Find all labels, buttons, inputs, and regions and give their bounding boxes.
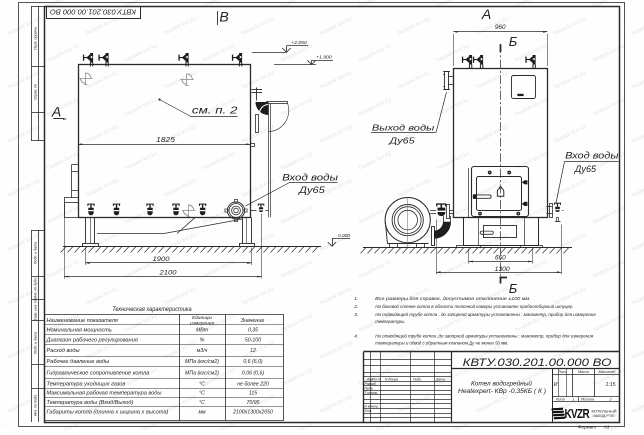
svg-text:70/95: 70/95	[247, 400, 260, 406]
svg-text:0.000: 0.000	[338, 233, 350, 238]
svg-text:Лит.: Лит.	[557, 370, 566, 374]
svg-text:мм: мм	[198, 409, 206, 415]
svg-text:Выход воды: Выход воды	[372, 122, 435, 132]
svg-text:Лист: Лист	[371, 377, 381, 381]
svg-text:660: 660	[495, 255, 506, 262]
svg-text:Справ. №: Справ. №	[33, 84, 37, 100]
svg-text:А3: А3	[603, 424, 610, 429]
svg-text:Формат: Формат	[578, 424, 596, 429]
svg-text:°С: °С	[199, 391, 205, 397]
svg-text:Перв. примен.: Перв. примен.	[33, 26, 37, 50]
svg-text:1:15: 1:15	[605, 382, 615, 388]
svg-text:А: А	[51, 103, 61, 119]
svg-text:2100: 2100	[158, 270, 177, 277]
svg-text:Лист: Лист	[555, 398, 565, 402]
svg-text:На боковой стенке котла в обла: На боковой стенке котла в области топочн…	[375, 303, 573, 310]
svg-text:м3/ч: м3/ч	[197, 348, 208, 354]
svg-text:1300: 1300	[495, 266, 511, 273]
svg-text:Пров.: Пров.	[365, 386, 374, 390]
svg-text:На отводящей трубе котла ,до з: На отводящей трубе котла ,до запорной ар…	[375, 332, 593, 339]
svg-text:Масштаб: Масштаб	[599, 370, 617, 374]
svg-text:Дата: Дата	[435, 377, 445, 381]
svg-text:Габариты котла (длинна х ширин: Габариты котла (длинна х ширина х высота…	[47, 409, 169, 415]
svg-text:Наименование показателя: Наименование показателя	[47, 318, 118, 324]
svg-text:Котел водогрейный: Котел водогрейный	[471, 381, 533, 388]
svg-text:%: %	[200, 337, 205, 343]
svg-text:Листов: Листов	[580, 398, 594, 402]
svg-text:Ду65: Ду65	[298, 185, 326, 195]
svg-text:3.: 3.	[354, 312, 358, 318]
svg-text:Heatexpert- КВр -0,35КБ ( К ): Heatexpert- КВр -0,35КБ ( К )	[458, 388, 546, 395]
svg-text:Разраб.: Разраб.	[365, 382, 377, 386]
svg-text:+2.050: +2.050	[291, 40, 307, 45]
svg-text:КВТУ.030.201.00.000 ВО: КВТУ.030.201.00.000 ВО	[463, 357, 612, 369]
svg-text:50-100: 50-100	[245, 337, 261, 343]
svg-text:+1.900: +1.900	[316, 55, 332, 60]
svg-text:Утв.: Утв.	[365, 409, 373, 413]
svg-text:Взам. инв. №: Взам. инв. №	[33, 299, 37, 321]
svg-text:Гидравлическое сопротивление к: Гидравлическое сопротивление котла	[47, 370, 150, 376]
svg-text:Техническая характеристика: Техническая характеристика	[112, 307, 192, 313]
svg-text:см. п. 2: см. п. 2	[192, 106, 238, 117]
svg-text:Инв. № подл.: Инв. № подл.	[33, 394, 37, 416]
svg-text:1900: 1900	[153, 256, 170, 263]
svg-text:Масса: Масса	[578, 370, 589, 374]
svg-text:Единицы: Единицы	[192, 315, 213, 321]
svg-text:2.: 2.	[353, 304, 358, 310]
svg-text:КОТЕЛЬНЫЙ: КОТЕЛЬНЫЙ	[592, 409, 617, 413]
svg-text:Рабочее давление воды: Рабочее давление воды	[47, 359, 110, 365]
svg-text:КВТУ.030.201.00.000 ВО: КВТУ.030.201.00.000 ВО	[49, 7, 136, 14]
svg-text:N докум.: N докум.	[385, 377, 399, 381]
svg-text:12: 12	[250, 348, 256, 354]
svg-text:не более 220: не более 220	[237, 381, 269, 387]
svg-text:Все размеры для справок, допус: Все размеры для справок, допустимое откл…	[375, 296, 531, 302]
svg-text:4.: 4.	[354, 333, 358, 339]
svg-text:1: 1	[572, 398, 574, 402]
svg-text:°С: °С	[199, 381, 205, 387]
svg-text:1825: 1825	[156, 137, 175, 144]
svg-text:На подводящей трубе котла , д: На подводящей трубе котла , до запорной …	[375, 311, 596, 318]
svg-text:В: В	[219, 9, 228, 25]
svg-text:0,6 (6,0): 0,6 (6,0)	[243, 359, 263, 365]
svg-text:Подп. и дата: Подп. и дата	[33, 242, 37, 265]
svg-text:Т.контр.: Т.контр.	[365, 391, 379, 395]
svg-text:Б: Б	[509, 34, 518, 49]
svg-text:0,06 (0,6): 0,06 (0,6)	[242, 370, 264, 376]
svg-text:Номинальная мощность: Номинальная мощность	[47, 328, 112, 334]
svg-text:Инв. № дубл.: Инв. № дубл.	[33, 277, 37, 299]
svg-text:Значение: Значение	[241, 318, 265, 324]
svg-text:Максимальная рабочая температу: Максимальная рабочая температура воды	[47, 391, 162, 397]
svg-text:°С: °С	[199, 400, 205, 406]
svg-text:960: 960	[495, 24, 506, 31]
svg-text:Температура воды (Вход/Выход): Температура воды (Вход/Выход)	[47, 400, 134, 406]
svg-text:измерения: измерения	[190, 321, 214, 326]
svg-text:МПа (кгс/см2): МПа (кгс/см2)	[185, 359, 219, 365]
svg-text:МВт: МВт	[196, 328, 209, 334]
svg-text:температуры и обвод с обратным: температуры и обвод с обратным клапаном …	[375, 340, 508, 346]
svg-text:И: И	[554, 382, 558, 388]
svg-text:Вход воды: Вход воды	[565, 151, 619, 161]
svg-text:Подп.: Подп.	[413, 377, 422, 381]
svg-text:ЗАВОД РЭП: ЗАВОД РЭП	[593, 414, 615, 418]
svg-text:0,35: 0,35	[248, 328, 258, 334]
svg-text:Б: Б	[509, 281, 518, 296]
svg-text:Расход воды: Расход воды	[47, 348, 80, 354]
svg-text:А: А	[481, 6, 491, 22]
svg-text:МПа (кгс/см2): МПа (кгс/см2)	[185, 370, 219, 376]
svg-text:Н.контр.: Н.контр.	[365, 405, 379, 409]
svg-text:2100х1300х2050: 2100х1300х2050	[232, 409, 273, 415]
svg-text:Температура уходящих газов: Температура уходящих газов	[47, 381, 126, 387]
svg-text:Ду65: Ду65	[574, 164, 597, 174]
svg-text:Ду65: Ду65	[388, 135, 415, 145]
svg-text:температуры.: температуры.	[375, 320, 405, 325]
svg-text:Подп. и дата: Подп. и дата	[33, 332, 37, 355]
svg-text:1.: 1.	[354, 296, 358, 302]
svg-text:Вход воды: Вход воды	[282, 173, 338, 183]
svg-text:115: 115	[249, 391, 257, 397]
svg-text:KVZR: KVZR	[565, 406, 591, 421]
svg-text:Диапазон рабочего регулировани: Диапазон рабочего регулирования	[46, 337, 138, 343]
